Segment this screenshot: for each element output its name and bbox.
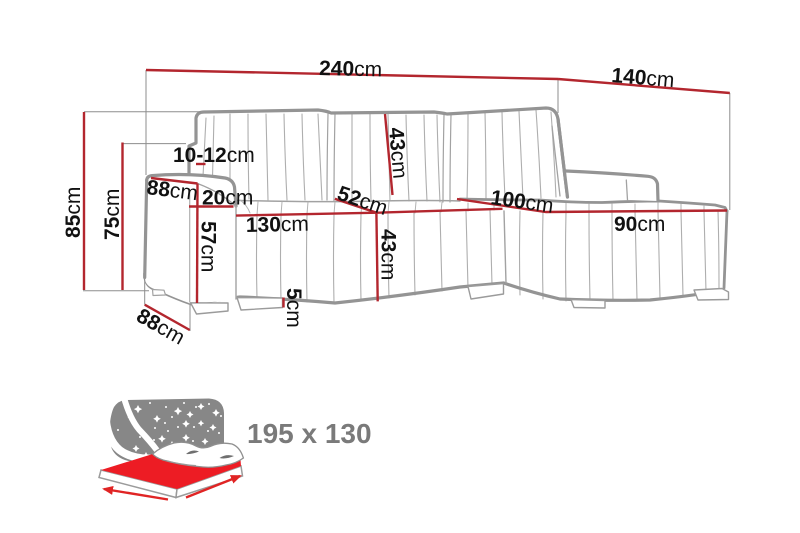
svg-text:75cm: 75cm bbox=[101, 189, 124, 240]
svg-text:85cm: 85cm bbox=[62, 187, 85, 238]
svg-text:43cm: 43cm bbox=[384, 126, 411, 179]
svg-text:140cm: 140cm bbox=[611, 64, 676, 92]
svg-text:88cm: 88cm bbox=[133, 304, 189, 349]
svg-text:10-12cm: 10-12cm bbox=[173, 144, 255, 167]
svg-text:130cm: 130cm bbox=[246, 213, 310, 237]
svg-text:240cm: 240cm bbox=[319, 57, 383, 81]
svg-text:5cm: 5cm bbox=[282, 288, 305, 328]
svg-text:20cm: 20cm bbox=[202, 187, 253, 210]
svg-text:195 x 130: 195 x 130 bbox=[247, 418, 372, 449]
svg-text:43cm: 43cm bbox=[377, 229, 400, 280]
svg-text:57cm: 57cm bbox=[197, 221, 220, 272]
svg-text:90cm: 90cm bbox=[614, 213, 665, 236]
